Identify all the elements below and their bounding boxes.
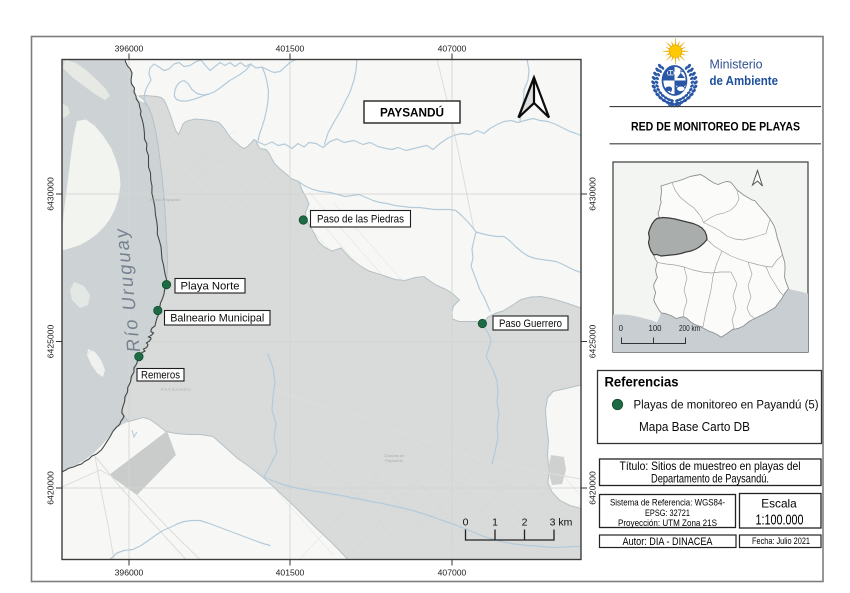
svg-text:396000: 396000 bbox=[115, 568, 144, 578]
svg-text:Paysandú: Paysandú bbox=[385, 458, 403, 463]
svg-text:Proyección: UTM Zona 21S: Proyección: UTM Zona 21S bbox=[618, 518, 717, 528]
svg-text:6420000: 6420000 bbox=[46, 471, 56, 505]
svg-text:Escala: Escala bbox=[761, 497, 797, 511]
svg-text:Balneario Municipal: Balneario Municipal bbox=[170, 313, 264, 325]
svg-text:Nuevo Paysandú: Nuevo Paysandú bbox=[150, 197, 180, 202]
svg-text:RED DE MONITOREO DE PLAYAS: RED DE MONITOREO DE PLAYAS bbox=[631, 120, 800, 134]
svg-text:0: 0 bbox=[619, 324, 624, 333]
svg-text:1:100.000: 1:100.000 bbox=[756, 513, 804, 529]
svg-text:PAYSANDÚ: PAYSANDÚ bbox=[380, 105, 444, 120]
svg-text:Sistema de Referencia: WGS84-: Sistema de Referencia: WGS84- bbox=[610, 498, 725, 508]
svg-text:Fecha: Julio 2021: Fecha: Julio 2021 bbox=[752, 536, 810, 547]
svg-text:2: 2 bbox=[522, 517, 528, 529]
svg-text:1: 1 bbox=[492, 517, 498, 529]
svg-text:Referencias: Referencias bbox=[605, 375, 679, 390]
svg-text:Playas de monitoreo en Payandú: Playas de monitoreo en Payandú (5) bbox=[634, 398, 819, 412]
svg-text:de Ambiente: de Ambiente bbox=[710, 73, 779, 88]
svg-text:Ministerio: Ministerio bbox=[710, 58, 763, 72]
svg-text:407000: 407000 bbox=[438, 44, 467, 54]
svg-text:6430000: 6430000 bbox=[588, 177, 598, 211]
svg-text:200 km: 200 km bbox=[679, 324, 700, 333]
svg-text:Paso Guerrero: Paso Guerrero bbox=[499, 318, 562, 330]
svg-text:6425000: 6425000 bbox=[46, 325, 56, 359]
svg-text:100: 100 bbox=[648, 324, 662, 333]
svg-text:0: 0 bbox=[463, 517, 469, 529]
svg-text:407000: 407000 bbox=[438, 568, 467, 578]
svg-text:401500: 401500 bbox=[276, 568, 305, 578]
svg-text:PAYSANDU: PAYSANDU bbox=[161, 387, 192, 392]
svg-text:Paso de las Piedras: Paso de las Piedras bbox=[317, 214, 404, 226]
svg-text:Remeros: Remeros bbox=[141, 370, 180, 382]
svg-text:3 km: 3 km bbox=[550, 517, 573, 529]
svg-text:6425000: 6425000 bbox=[588, 325, 598, 359]
svg-text:Departamento de Paysandú.: Departamento de Paysandú. bbox=[651, 472, 769, 486]
svg-text:6420000: 6420000 bbox=[588, 471, 598, 505]
svg-text:6430000: 6430000 bbox=[46, 177, 56, 211]
svg-text:EPSG: 32721: EPSG: 32721 bbox=[645, 508, 690, 518]
svg-text:401500: 401500 bbox=[276, 44, 305, 54]
svg-text:396000: 396000 bbox=[115, 44, 144, 54]
svg-text:Autor: DIA - DINACEA: Autor: DIA - DINACEA bbox=[623, 536, 713, 548]
svg-text:Mapa Base Carto DB: Mapa Base Carto DB bbox=[639, 419, 750, 434]
svg-text:Playa Norte: Playa Norte bbox=[181, 281, 240, 293]
